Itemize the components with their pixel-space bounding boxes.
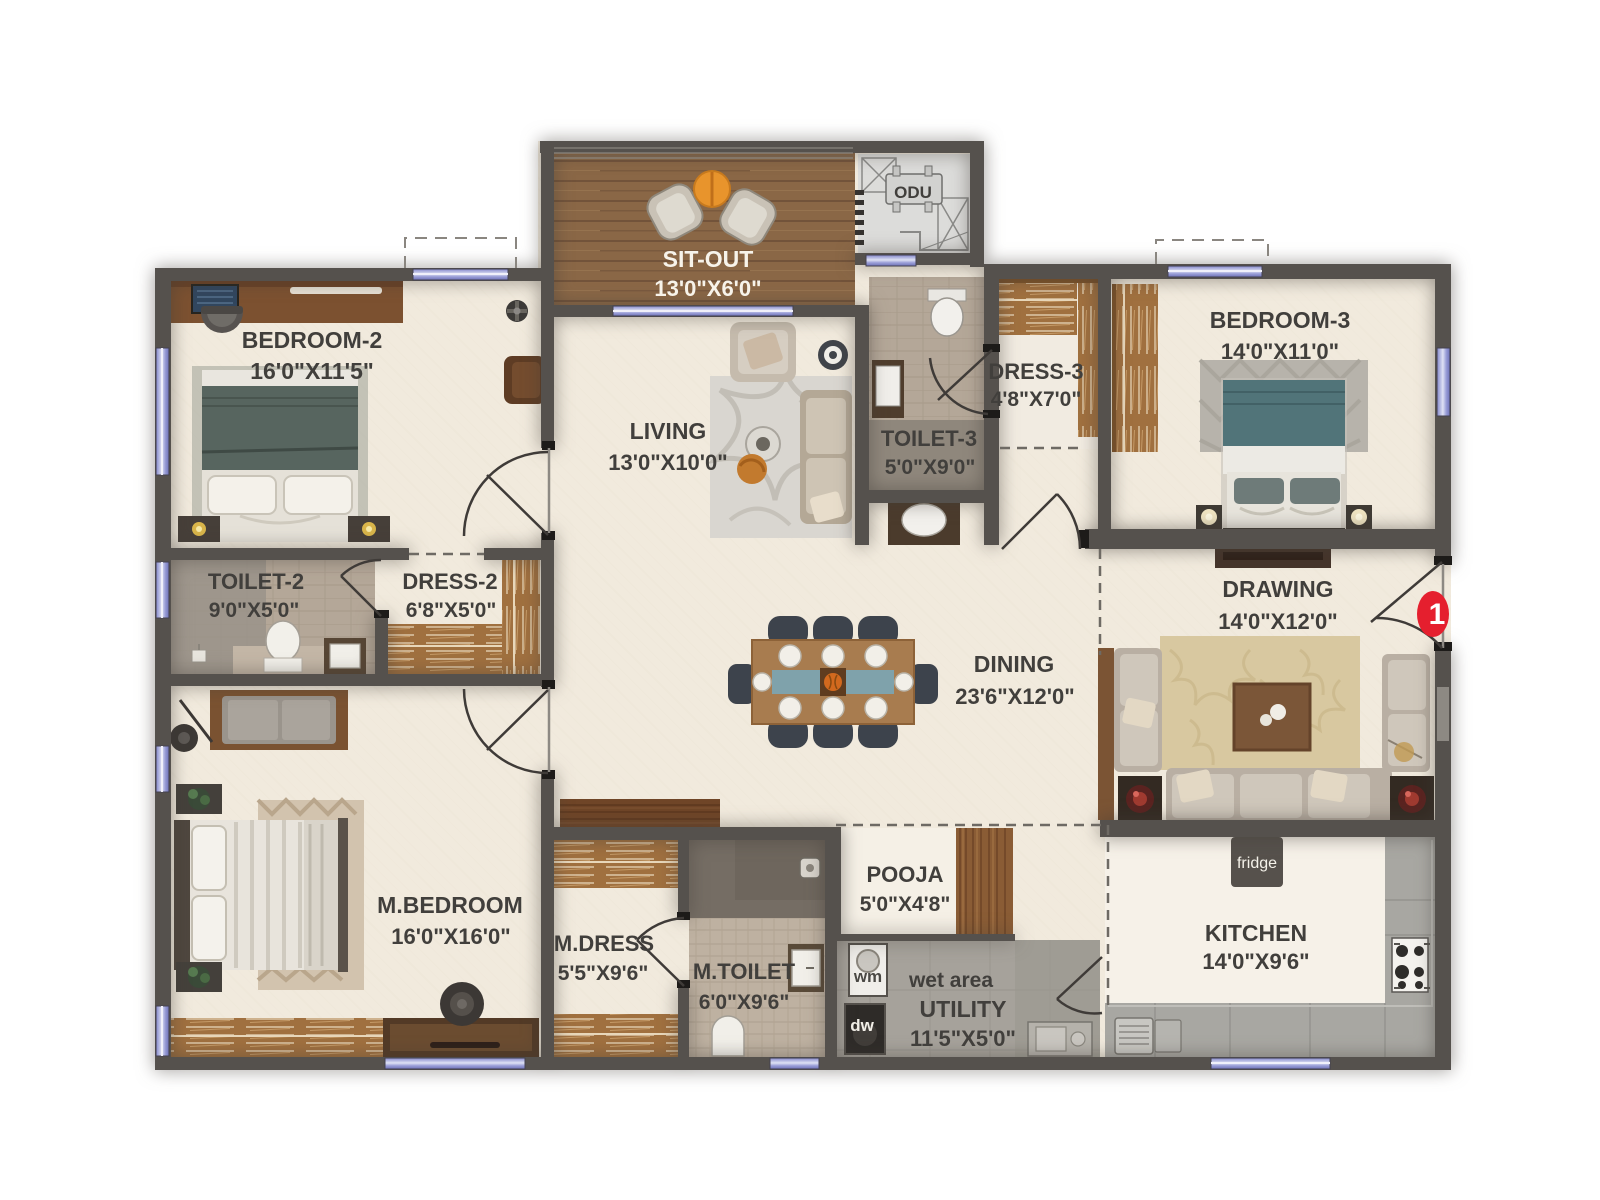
svg-text:M.DRESS: M.DRESS: [554, 931, 654, 956]
svg-text:UTILITY: UTILITY: [920, 996, 1007, 1022]
svg-text:16'0"X11'5": 16'0"X11'5": [250, 358, 374, 384]
svg-text:DINING: DINING: [974, 651, 1055, 677]
svg-text:23'6"X12'0": 23'6"X12'0": [955, 684, 1074, 709]
svg-text:BEDROOM-3: BEDROOM-3: [1210, 307, 1351, 333]
svg-text:BEDROOM-2: BEDROOM-2: [242, 327, 383, 353]
svg-text:M.TOILET: M.TOILET: [693, 959, 796, 984]
svg-text:5'5"X9'6": 5'5"X9'6": [558, 962, 649, 985]
svg-text:DRESS-2: DRESS-2: [402, 569, 497, 594]
svg-text:14'0"X9'6": 14'0"X9'6": [1202, 949, 1309, 974]
svg-text:DRAWING: DRAWING: [1222, 576, 1333, 602]
svg-text:SIT-OUT: SIT-OUT: [663, 246, 754, 272]
svg-text:6'0"X9'6": 6'0"X9'6": [699, 991, 790, 1014]
svg-text:M.BEDROOM: M.BEDROOM: [377, 892, 523, 918]
svg-text:5'0"X4'8": 5'0"X4'8": [860, 893, 951, 916]
svg-text:14'0"X12'0": 14'0"X12'0": [1218, 609, 1337, 634]
svg-text:1: 1: [1429, 598, 1446, 631]
svg-text:fridge: fridge: [1237, 855, 1277, 872]
svg-text:POOJA: POOJA: [866, 862, 943, 887]
svg-text:dw: dw: [850, 1016, 874, 1035]
svg-text:14'0"X11'0": 14'0"X11'0": [1221, 339, 1339, 364]
svg-text:6'8"X5'0": 6'8"X5'0": [406, 599, 497, 622]
svg-text:11'5"X5'0": 11'5"X5'0": [910, 1026, 1016, 1051]
svg-text:16'0"X16'0": 16'0"X16'0": [391, 924, 510, 949]
svg-text:DRESS-3: DRESS-3: [988, 359, 1083, 384]
svg-text:wet area: wet area: [908, 969, 993, 992]
svg-text:TOILET-2: TOILET-2: [208, 569, 304, 594]
svg-text:13'0"X6'0": 13'0"X6'0": [654, 276, 761, 301]
svg-text:ODU: ODU: [894, 183, 932, 202]
svg-text:4'8"X7'0": 4'8"X7'0": [991, 388, 1082, 411]
svg-text:KITCHEN: KITCHEN: [1205, 920, 1307, 946]
svg-text:LIVING: LIVING: [630, 418, 707, 444]
svg-text:13'0"X10'0": 13'0"X10'0": [608, 450, 727, 475]
svg-text:wm: wm: [853, 967, 882, 986]
svg-text:9'0"X5'0": 9'0"X5'0": [209, 599, 300, 622]
svg-text:TOILET-3: TOILET-3: [881, 426, 977, 451]
svg-text:5'0"X9'0": 5'0"X9'0": [885, 456, 976, 479]
